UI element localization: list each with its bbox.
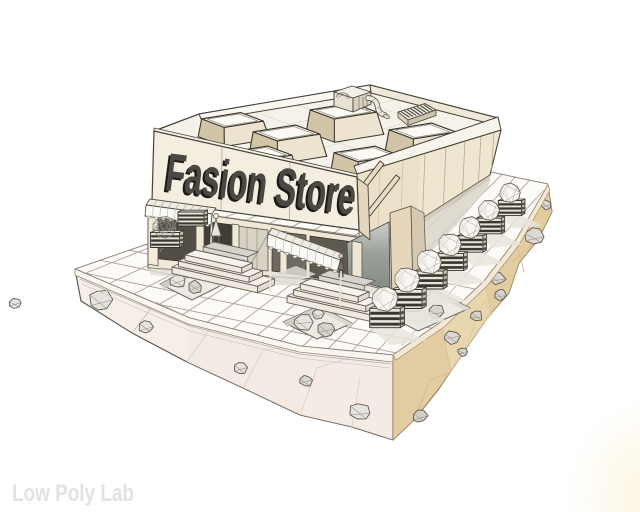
svg-text:Low Poly Lab: Low Poly Lab <box>12 480 134 507</box>
